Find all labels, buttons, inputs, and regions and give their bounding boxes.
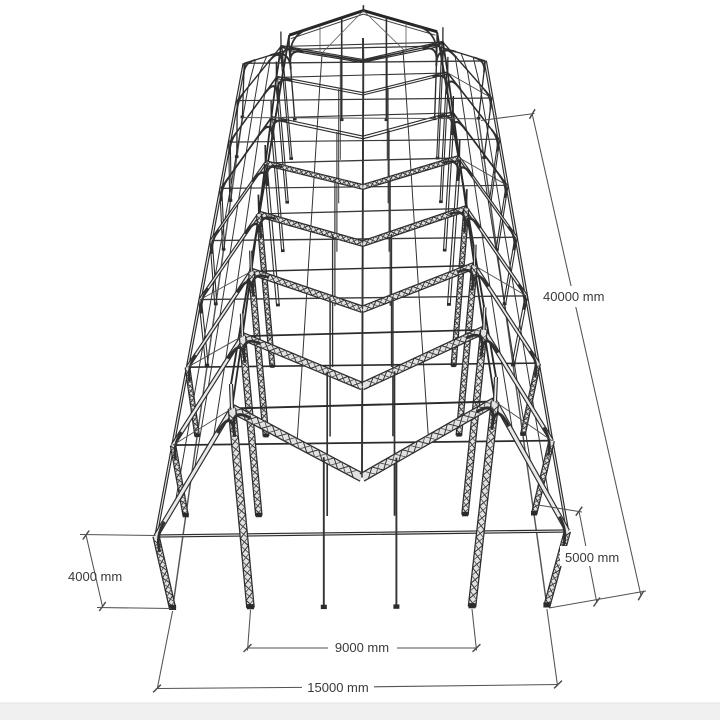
- svg-text:5000 mm: 5000 mm: [565, 550, 619, 565]
- svg-text:4000 mm: 4000 mm: [68, 569, 122, 584]
- svg-text:9000 mm: 9000 mm: [335, 640, 389, 655]
- svg-text:40000 mm: 40000 mm: [543, 289, 604, 304]
- svg-text:15000 mm: 15000 mm: [307, 680, 368, 695]
